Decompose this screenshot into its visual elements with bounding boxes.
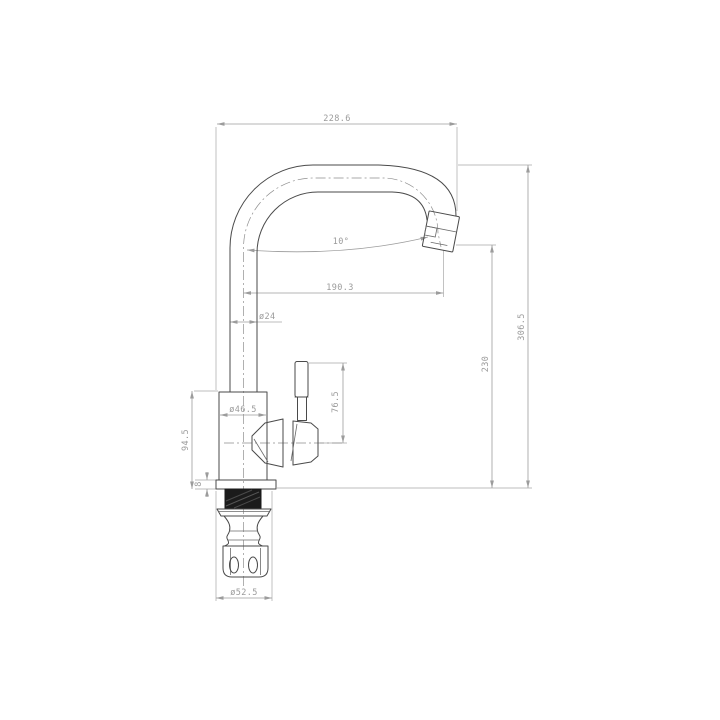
- handle-lever: [295, 362, 308, 421]
- aerator-tip-line: [431, 242, 448, 245]
- label-lever-height: 76.5: [331, 391, 341, 413]
- washer-outline: [217, 509, 271, 516]
- wing-nut: [223, 546, 268, 577]
- dimension-labels: 228.6 306.5 230 190.3 10° ø24 ø46.5 94.5…: [181, 114, 527, 598]
- wing-nut-slot: [249, 557, 258, 573]
- nut-right-profile: [257, 516, 263, 546]
- lever-stem: [298, 397, 307, 421]
- label-tube-diameter: ø24: [259, 312, 276, 322]
- faucet-dimension-drawing: 228.6 306.5 230 190.3 10° ø24 ø46.5 94.5…: [0, 0, 720, 720]
- housing-facet: [291, 424, 297, 461]
- label-overall-height: 306.5: [517, 313, 527, 341]
- base-plate: [216, 480, 276, 489]
- label-flange-diameter: ø52.5: [230, 588, 258, 598]
- threaded-shank: [225, 489, 261, 509]
- lever-grip: [295, 362, 308, 398]
- washer-flange: [217, 509, 271, 516]
- label-outlet-height: 230: [481, 356, 491, 373]
- label-top-width: 228.6: [323, 114, 351, 124]
- label-spout-angle: 10°: [333, 237, 350, 247]
- label-spout-reach: 190.3: [326, 283, 354, 293]
- faucet-outline: [216, 165, 460, 577]
- label-body-height: 94.5: [181, 429, 191, 451]
- label-body-diameter: ø46.5: [229, 405, 257, 415]
- label-plate-thickness: 8: [194, 481, 204, 487]
- technical-drawing-canvas: 228.6 306.5 230 190.3 10° ø24 ø46.5 94.5…: [0, 0, 720, 720]
- nut-left-profile: [224, 516, 230, 546]
